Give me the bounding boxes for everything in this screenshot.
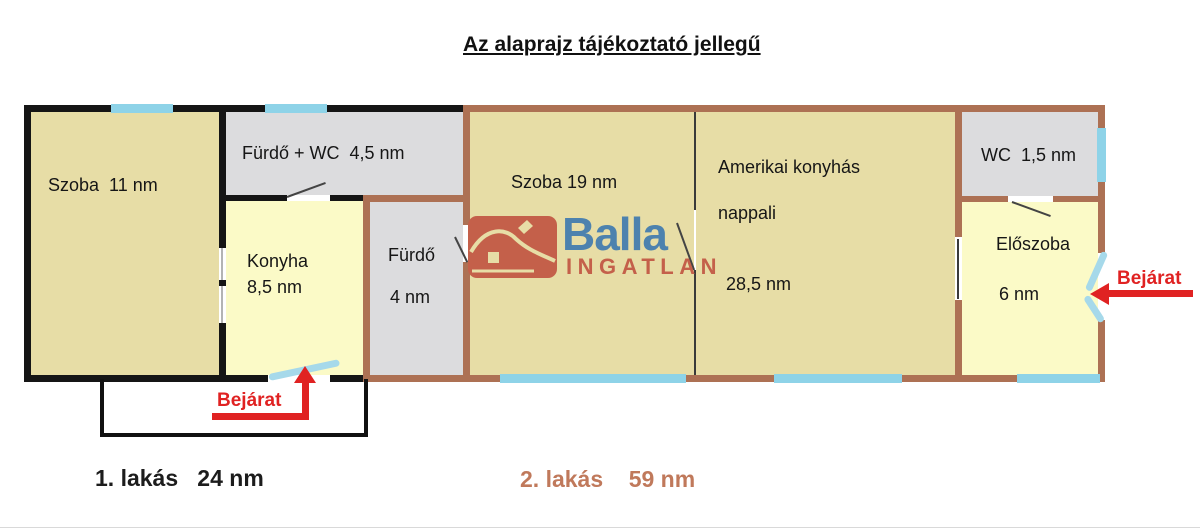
logo-brand-text: Balla <box>562 211 667 257</box>
wall-nappali-right-lower <box>955 300 962 382</box>
label-bejarat-apt1: Bejárat <box>217 390 281 412</box>
label-furdo4-area: 4 nm <box>390 287 430 309</box>
wall-nappali-right-upper <box>955 112 962 237</box>
wall-apt2-bottom <box>363 375 1105 382</box>
wall-apt2-top <box>463 105 1105 112</box>
wall-szoba19-nappali-lower <box>694 270 696 375</box>
door-leaf-eloszoba-nappali <box>957 239 959 299</box>
room-nappali <box>696 112 955 375</box>
wall-apt2-right-lower <box>1098 320 1105 382</box>
label-nappali-area: 28,5 nm <box>726 274 791 296</box>
wall-furdo4-left <box>363 195 370 382</box>
arrow-apt1-shaft-h <box>212 413 309 420</box>
label-furdo4-name: Fürdő <box>388 245 435 267</box>
arrow-apt2-head-icon <box>1090 283 1109 305</box>
label-szoba11: Szoba 11 nm <box>48 175 158 197</box>
wall-szoba19-left-lower <box>463 262 470 382</box>
label-furdo-wc: Fürdő + WC 4,5 nm <box>242 143 405 165</box>
wall-furdowc-bottom-right <box>330 195 367 201</box>
label-wc: WC 1,5 nm <box>981 145 1076 167</box>
wall-furdo4-top <box>363 195 470 202</box>
window-eloszoba-bottom <box>1017 374 1100 383</box>
label-konyha-name: Konyha <box>247 251 308 273</box>
wall-furdowc-bottom-left <box>219 195 287 201</box>
label-nappali-line1: Amerikai konyhás <box>718 157 860 179</box>
label-apartment-2: 2. lakás 59 nm <box>520 466 695 493</box>
room-szoba-11 <box>31 112 219 375</box>
wall-szoba19-nappali-upper <box>694 112 696 210</box>
arrow-apt1-shaft-v <box>302 382 309 420</box>
logo-sub-text: INGATLAN <box>566 256 722 278</box>
door-tick-szoba11 <box>219 280 226 286</box>
arrow-apt2-shaft <box>1108 290 1193 297</box>
window-szoba19-bottom <box>500 374 686 383</box>
label-szoba19: Szoba 19 nm <box>511 172 617 194</box>
window-wc-right <box>1097 128 1106 182</box>
wall-szoba19-left-upper <box>463 112 470 225</box>
label-eloszoba-name: Előszoba <box>996 234 1070 256</box>
label-nappali-line2: nappali <box>718 203 776 225</box>
wall-szoba11-konyha-lower <box>219 323 226 375</box>
wall-apt1-left <box>24 105 31 382</box>
label-bejarat-apt2: Bejárat <box>1117 268 1181 290</box>
page-title: Az alaprajz tájékoztató jellegű <box>463 33 761 57</box>
bottom-edge-line <box>0 527 1200 528</box>
window-szoba11-left <box>111 104 173 113</box>
label-konyha-area: 8,5 nm <box>247 277 302 299</box>
window-furdowc-top <box>265 104 327 113</box>
wall-wc-bottom-left <box>962 196 1008 202</box>
logo-house-icon <box>468 216 557 278</box>
floor-plan-canvas: Az alaprajz tájékoztató jellegű <box>0 0 1200 530</box>
wall-apt1-top <box>24 105 463 112</box>
label-apartment-1: 1. lakás 24 nm <box>95 465 264 492</box>
window-nappali-bottom <box>774 374 902 383</box>
label-eloszoba-area: 6 nm <box>999 284 1039 306</box>
arrow-apt1-head-icon <box>294 366 316 383</box>
wall-szoba11-konyha-upper <box>219 112 226 248</box>
